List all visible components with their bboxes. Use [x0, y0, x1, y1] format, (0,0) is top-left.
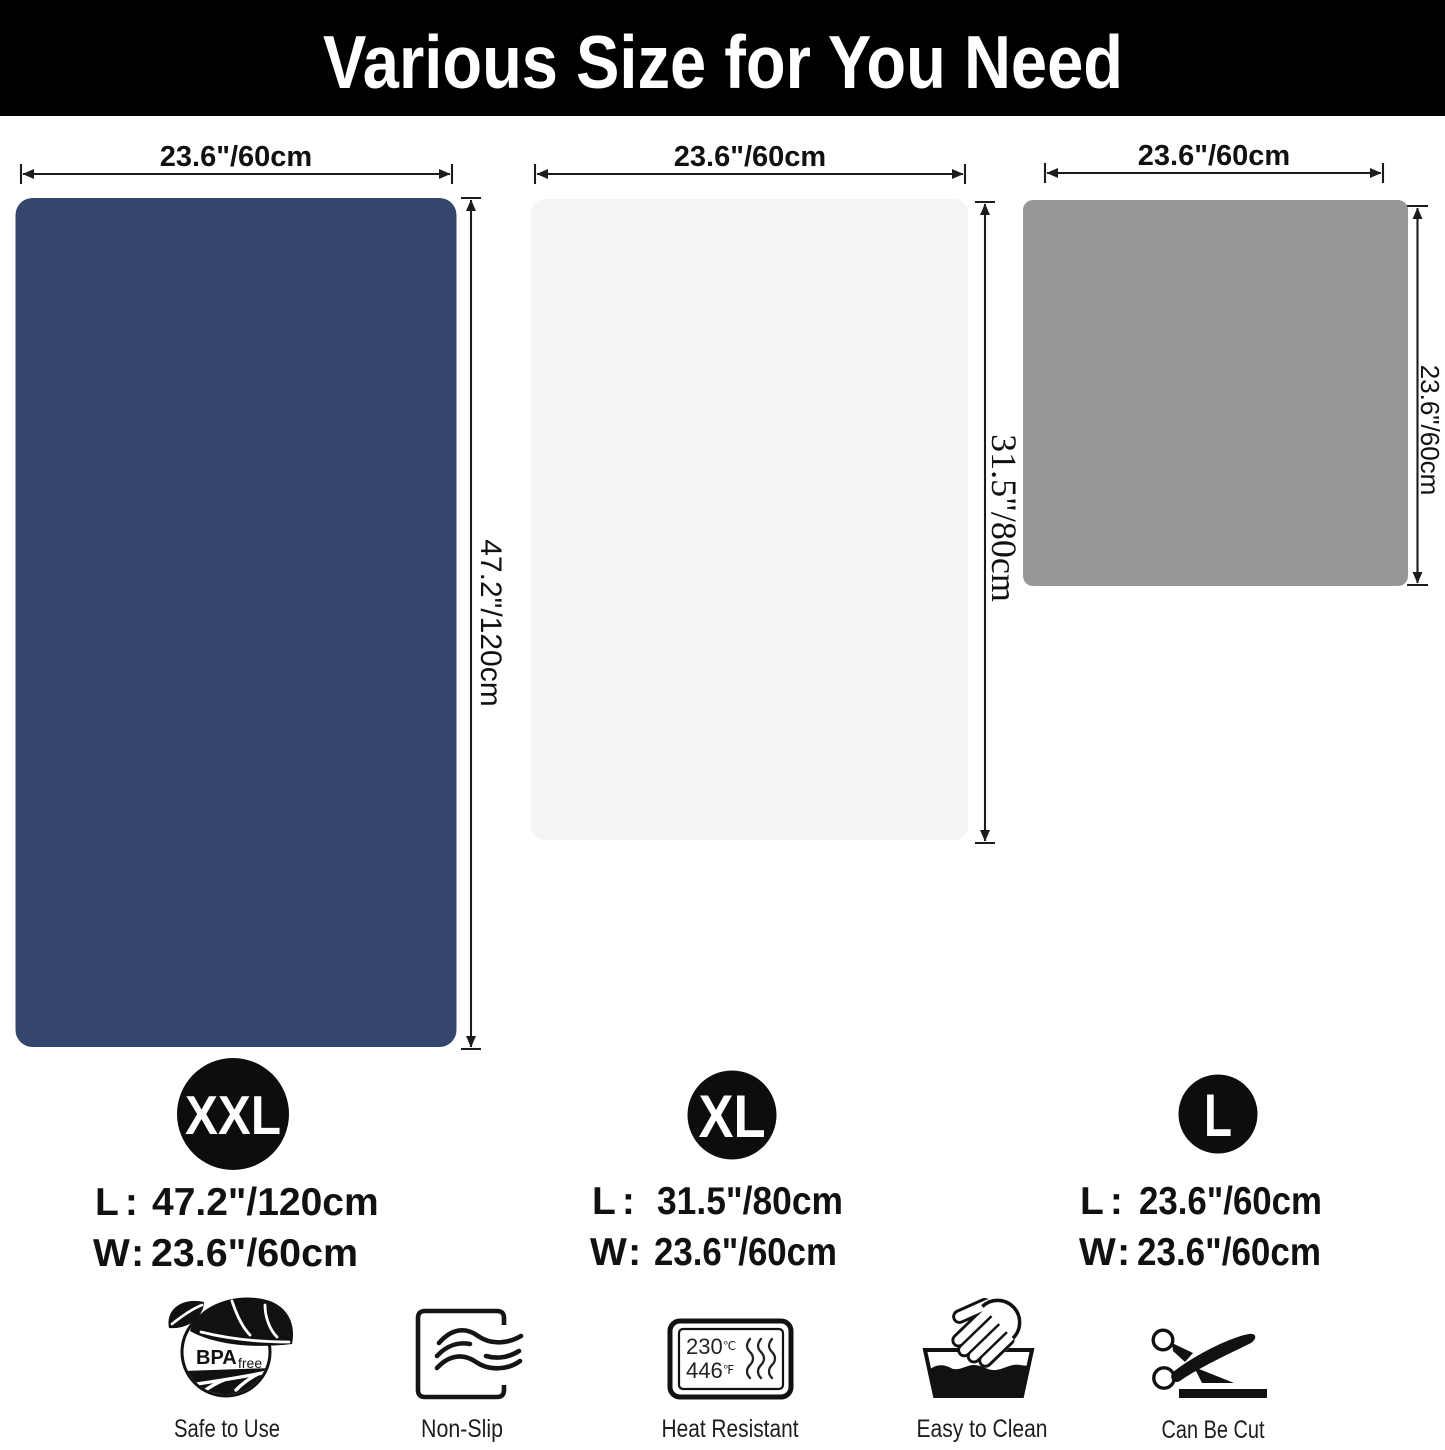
svg-text:free: free	[238, 1355, 262, 1371]
svg-text:47.2"/120cm: 47.2"/120cm	[474, 539, 507, 706]
svg-text:W:: W:	[590, 1231, 643, 1274]
svg-text:W:: W:	[93, 1232, 146, 1275]
svg-text:23.6"/60cm: 23.6"/60cm	[1139, 1180, 1322, 1223]
svg-text:23.6"/60cm: 23.6"/60cm	[1415, 365, 1445, 496]
svg-text:L: L	[1204, 1082, 1232, 1149]
svg-text:Non-Slip: Non-Slip	[421, 1415, 503, 1443]
svg-text:31.5"/80cm: 31.5"/80cm	[984, 434, 1024, 602]
svg-text:XXL: XXL	[185, 1084, 281, 1146]
svg-text:Various Size for You Need: Various Size for You Need	[323, 20, 1123, 104]
svg-text:Can Be Cut: Can Be Cut	[1162, 1416, 1265, 1444]
svg-text:23.6"/60cm: 23.6"/60cm	[674, 141, 826, 173]
svg-text:23.6"/60cm: 23.6"/60cm	[160, 141, 312, 173]
svg-text:23.6"/60cm: 23.6"/60cm	[151, 1232, 358, 1275]
svg-text:23.6"/60cm: 23.6"/60cm	[654, 1231, 837, 1274]
svg-text:47.2"/120cm: 47.2"/120cm	[152, 1181, 379, 1224]
svg-text:W:: W:	[1079, 1231, 1132, 1274]
svg-text:23.6"/60cm: 23.6"/60cm	[1138, 140, 1290, 172]
svg-text:23.6"/60cm: 23.6"/60cm	[1137, 1231, 1321, 1274]
svg-text:L:: L:	[592, 1180, 641, 1223]
svg-text:XL: XL	[699, 1083, 766, 1150]
svg-text:Safe to Use: Safe to Use	[174, 1415, 280, 1443]
svg-text:L:: L:	[1080, 1180, 1129, 1223]
svg-text:Easy to Clean: Easy to Clean	[917, 1415, 1048, 1443]
svg-text:L:: L:	[95, 1181, 144, 1224]
svg-text:BPA: BPA	[196, 1347, 237, 1369]
svg-text:Heat Resistant: Heat Resistant	[662, 1415, 799, 1443]
svg-text:31.5"/80cm: 31.5"/80cm	[657, 1180, 843, 1223]
